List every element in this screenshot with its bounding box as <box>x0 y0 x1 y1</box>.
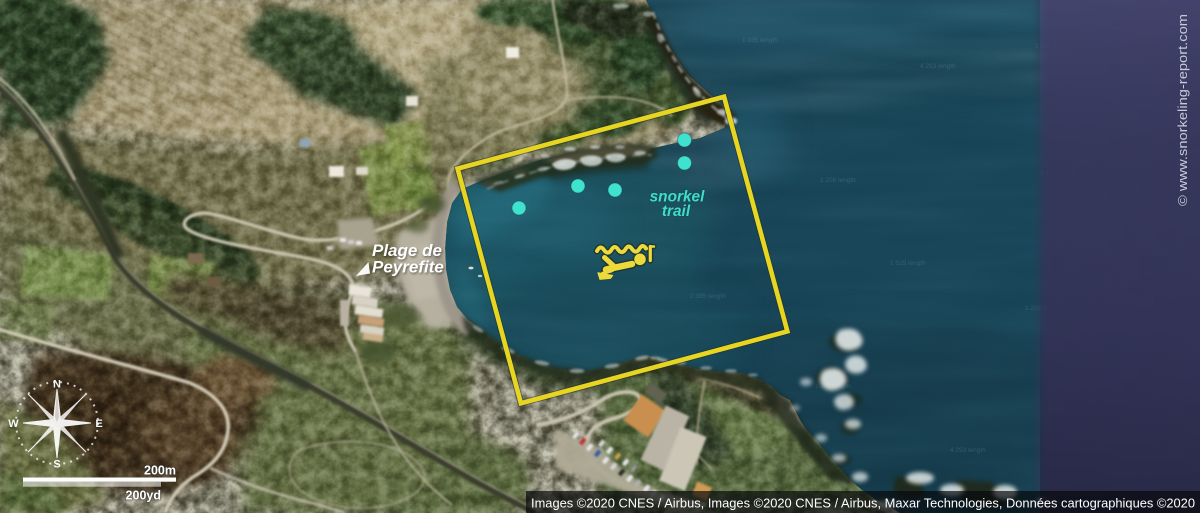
svg-text:1 035 length: 1 035 length <box>742 37 778 44</box>
svg-text:N: N <box>53 379 61 391</box>
svg-text:trail: trail <box>662 203 691 220</box>
svg-text:200yd: 200yd <box>126 489 161 503</box>
svg-text:2 385 length: 2 385 length <box>690 293 726 300</box>
svg-text:200m: 200m <box>144 464 176 478</box>
svg-text:Peyrefite: Peyrefite <box>372 258 444 277</box>
svg-text:© www.snorkeling-report.com: © www.snorkeling-report.com <box>1176 14 1190 206</box>
svg-text:Images ©2020 CNES / Airbus, Im: Images ©2020 CNES / Airbus, Images ©2020… <box>531 496 1195 511</box>
svg-text:E: E <box>95 418 102 430</box>
svg-text:W: W <box>8 418 19 430</box>
svg-text:4 293 length: 4 293 length <box>920 63 956 70</box>
svg-text:1 205 length: 1 205 length <box>820 177 856 184</box>
svg-text:4 293 length: 4 293 length <box>950 447 986 454</box>
svg-text:1 529 length: 1 529 length <box>890 260 926 267</box>
svg-text:S: S <box>53 459 60 471</box>
